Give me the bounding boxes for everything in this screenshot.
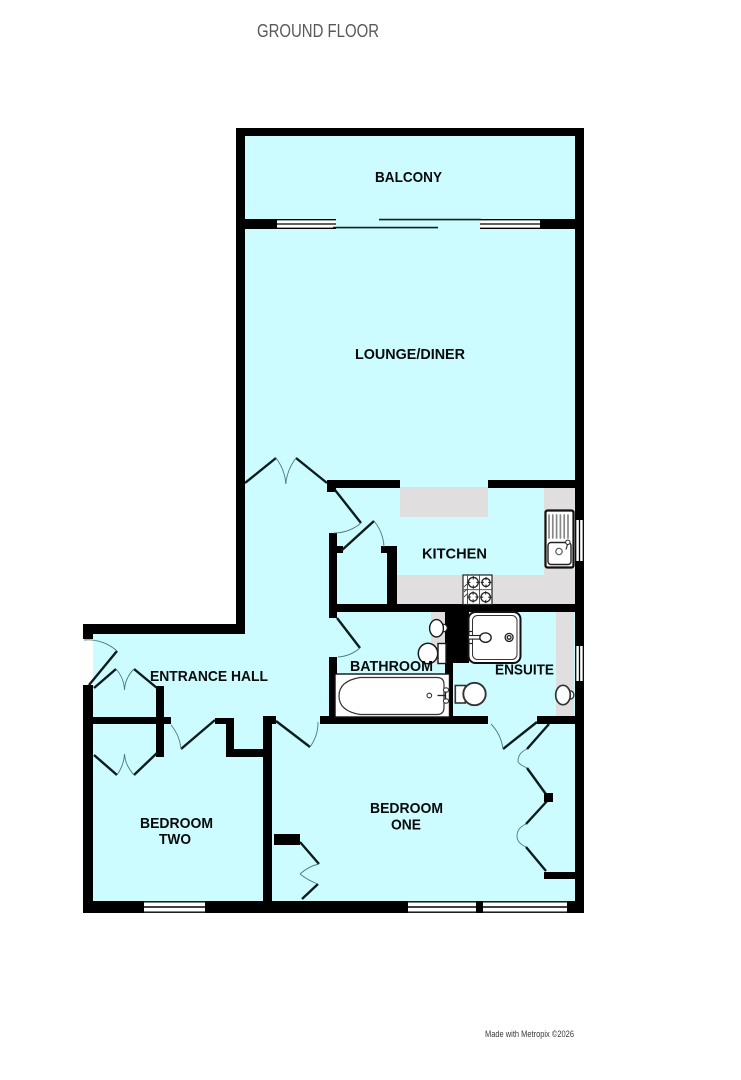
- svg-text:Made with Metropix ©2026: Made with Metropix ©2026: [485, 1029, 574, 1040]
- svg-text:BEDROOM: BEDROOM: [370, 800, 443, 817]
- svg-text:BEDROOM: BEDROOM: [140, 815, 213, 832]
- svg-text:BALCONY: BALCONY: [375, 169, 442, 186]
- svg-text:TWO: TWO: [159, 831, 191, 848]
- svg-text:ENSUITE: ENSUITE: [495, 662, 554, 679]
- svg-text:LOUNGE/DINER: LOUNGE/DINER: [355, 346, 465, 363]
- svg-text:GROUND FLOOR: GROUND FLOOR: [257, 21, 379, 41]
- svg-text:KITCHEN: KITCHEN: [422, 546, 487, 563]
- svg-text:BATHROOM: BATHROOM: [350, 658, 433, 675]
- svg-text:ONE: ONE: [391, 817, 421, 834]
- svg-text:ENTRANCE HALL: ENTRANCE HALL: [150, 668, 268, 685]
